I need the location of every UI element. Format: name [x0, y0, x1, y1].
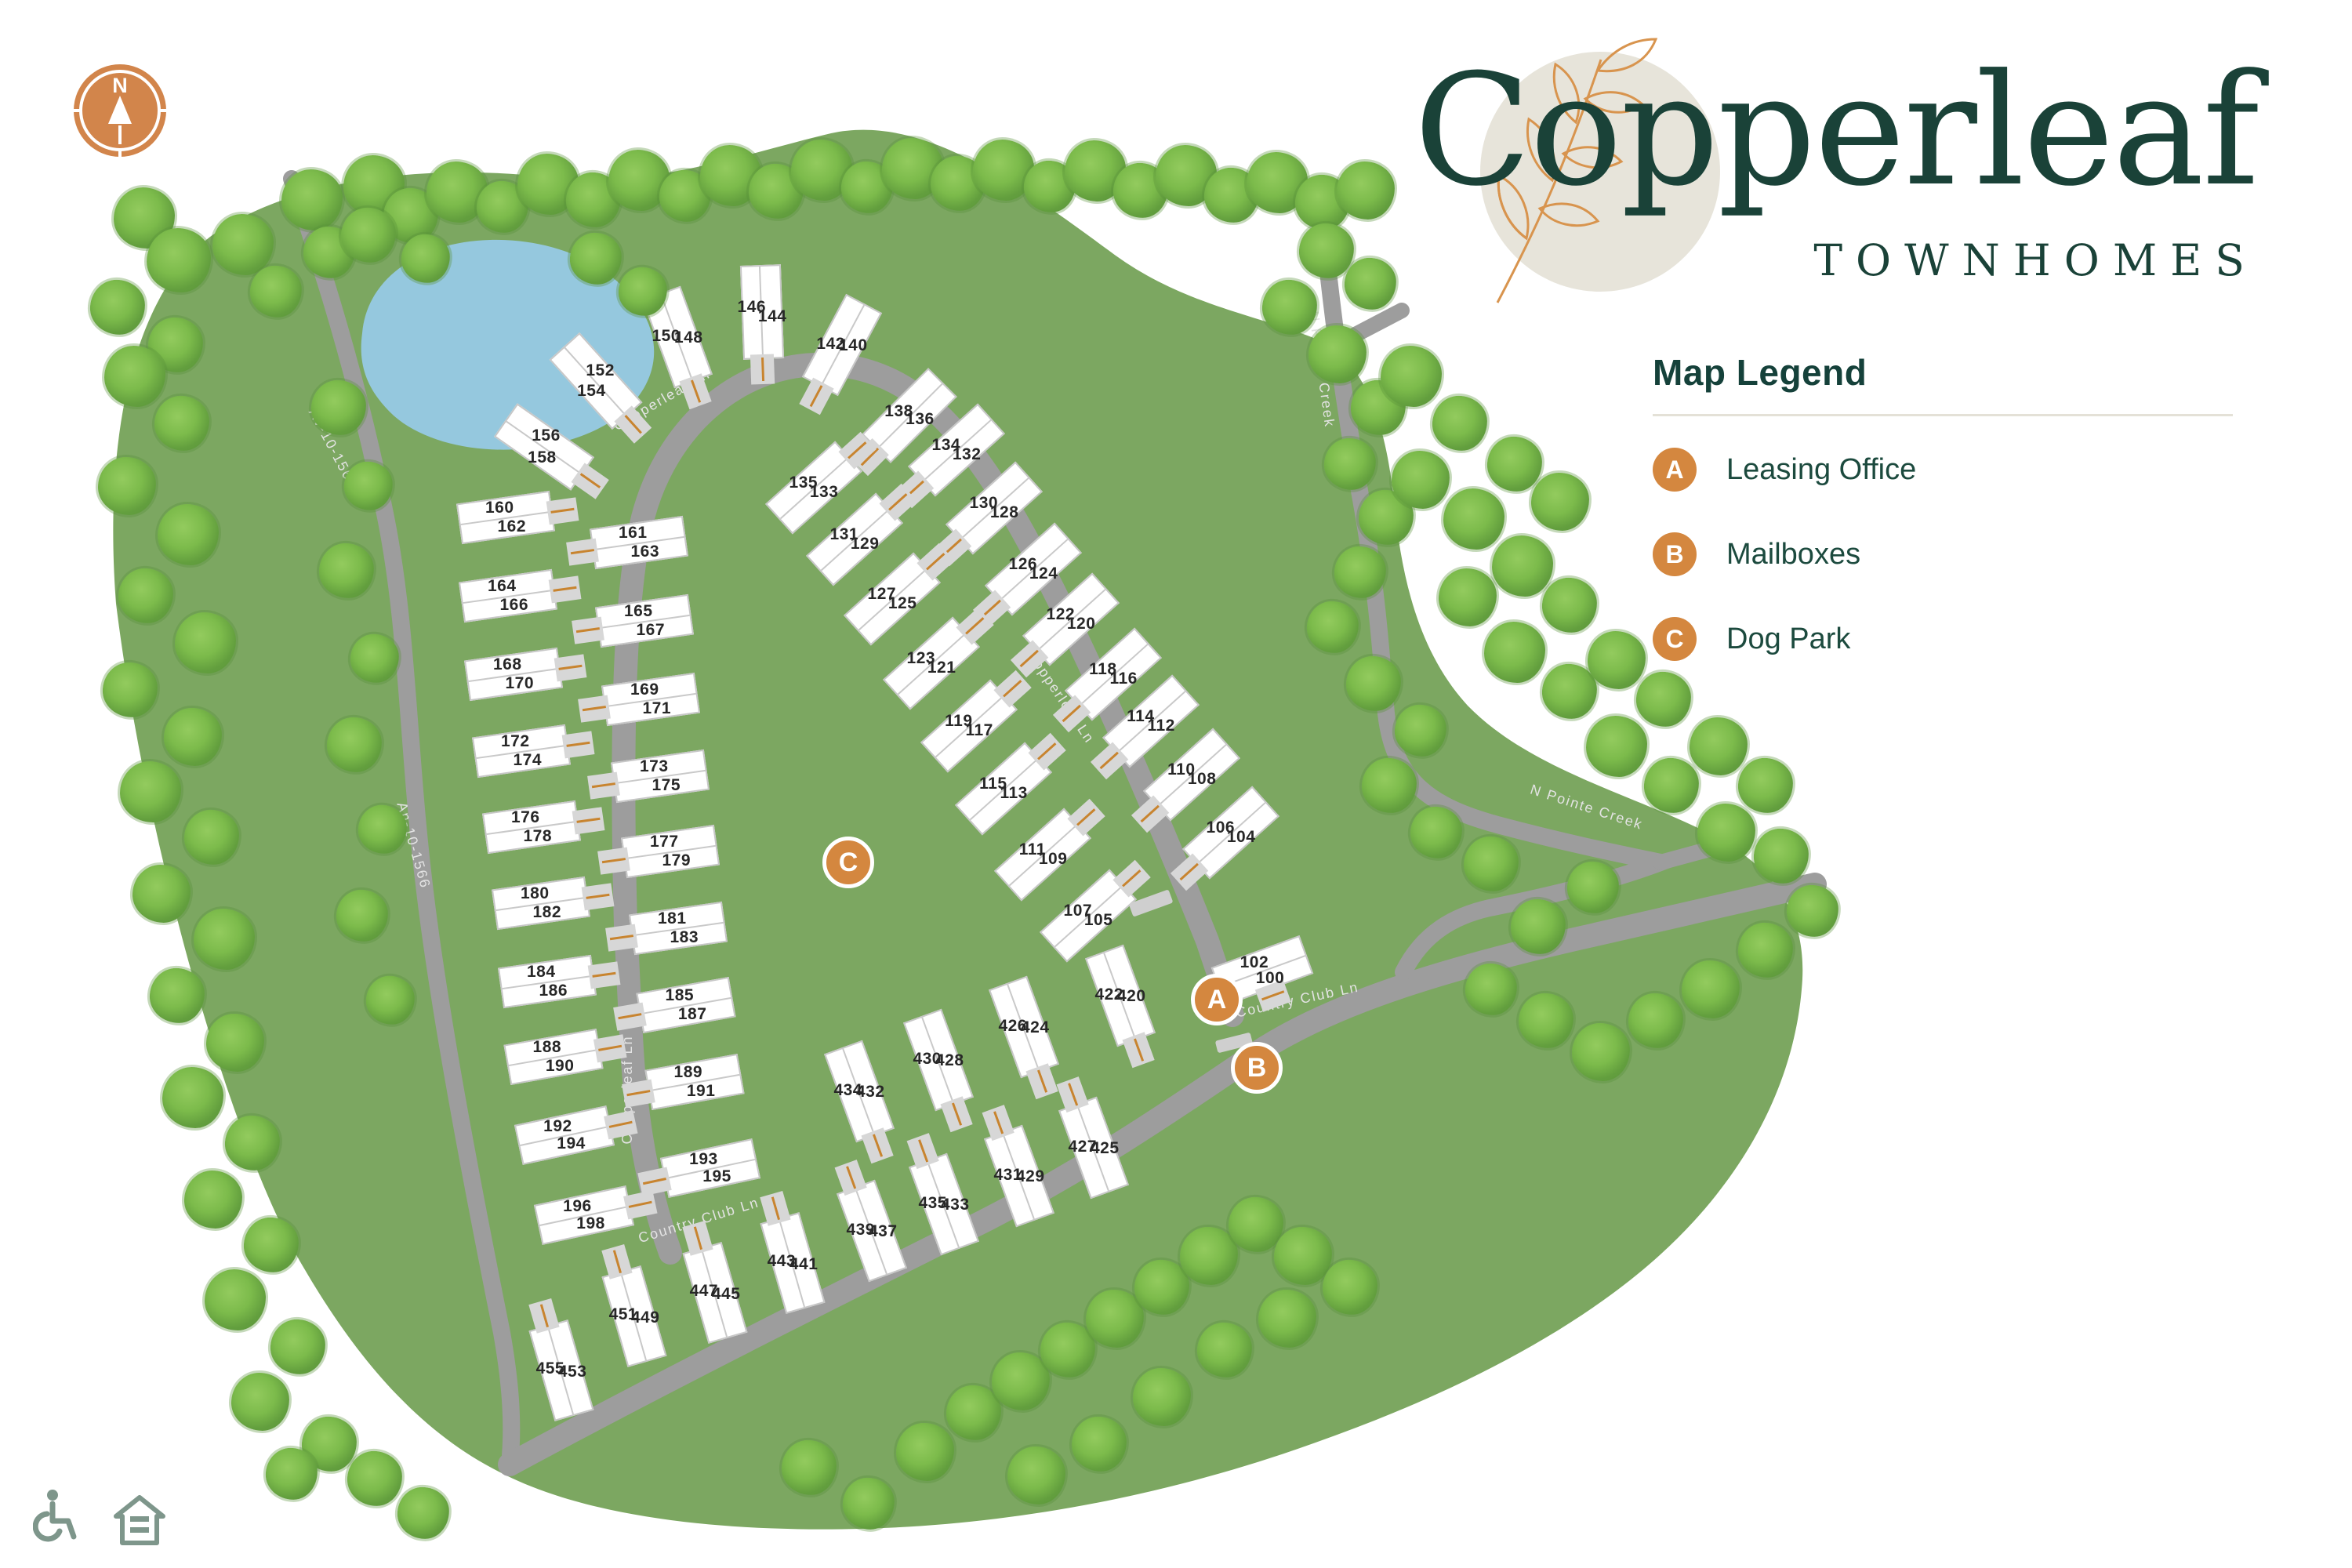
driveway-pad [549, 575, 582, 603]
tree-icon [1487, 437, 1542, 492]
tree-icon [1395, 705, 1446, 757]
tree-icon [1381, 346, 1442, 407]
unit-number-429: 429 [1016, 1167, 1045, 1186]
driveway-pad [554, 654, 587, 681]
unit-number-453: 453 [558, 1363, 587, 1381]
tree-icon [184, 1171, 242, 1229]
tree-icon [1432, 396, 1487, 451]
tree-icon [164, 708, 222, 766]
unit-number-109: 109 [1039, 850, 1068, 869]
footer-icons [33, 1488, 168, 1549]
unit-number-128: 128 [990, 503, 1019, 522]
tree-icon [103, 662, 158, 717]
driveway-divider-line [571, 549, 594, 554]
driveway-pad [582, 883, 615, 910]
unit-number-117: 117 [965, 721, 993, 740]
tree-icon [1258, 1290, 1316, 1348]
driveway-divider-line [1261, 990, 1284, 1000]
driveway-divider-line [1134, 1039, 1144, 1062]
tree-icon [281, 169, 343, 230]
unit-number-196: 196 [563, 1197, 592, 1216]
driveway-divider-line [580, 473, 601, 488]
driveway-pad [572, 617, 604, 644]
tree-icon [1410, 807, 1462, 858]
unit-number-132: 132 [953, 445, 982, 464]
tree-icon [270, 1319, 325, 1374]
tree-icon [1337, 162, 1395, 220]
tree-icon [347, 1451, 402, 1506]
driveway-divider-line [1020, 650, 1039, 667]
driveway-pad [578, 695, 611, 723]
unit-number-178: 178 [523, 827, 552, 846]
tree-icon [162, 1067, 223, 1128]
tree-icon [397, 1487, 449, 1539]
unit-number-198: 198 [576, 1214, 605, 1233]
unit-number-437: 437 [869, 1222, 898, 1241]
tree-icon [1542, 578, 1597, 633]
tree-icon [1334, 546, 1386, 598]
unit-number-156: 156 [532, 426, 561, 445]
unit-number-441: 441 [789, 1255, 818, 1274]
driveway-divider-line [771, 1196, 780, 1220]
tree-icon [150, 968, 205, 1023]
tree-icon [1586, 716, 1647, 777]
tree-icon [1274, 1227, 1332, 1285]
unit-number-192: 192 [543, 1117, 572, 1136]
unit-number-100: 100 [1256, 969, 1285, 988]
tree-icon [118, 568, 173, 623]
unit-number-113: 113 [1000, 784, 1027, 803]
legend-divider [1653, 414, 2233, 416]
legend-key-badge: B [1653, 532, 1697, 576]
tree-icon [1392, 451, 1450, 509]
unit-number-165: 165 [624, 602, 653, 621]
driveway-divider-line [1076, 808, 1095, 826]
driveway-divider-line [1141, 805, 1160, 822]
driveway-divider-line [1037, 742, 1056, 760]
unit-number-161: 161 [619, 524, 648, 543]
unit-number-167: 167 [636, 621, 665, 640]
unit-number-120: 120 [1067, 615, 1096, 633]
tree-icon [132, 865, 191, 923]
driveway-divider-line [583, 706, 606, 711]
unit-number-428: 428 [935, 1051, 964, 1070]
unit-number-189: 189 [674, 1063, 703, 1082]
tree-icon [1519, 993, 1573, 1048]
tree-icon [205, 1269, 266, 1330]
unit-number-166: 166 [499, 596, 528, 615]
unit-number-112: 112 [1147, 717, 1174, 735]
driveway-divider-line [566, 742, 590, 747]
driveway-divider-line [540, 1304, 549, 1327]
driveway-divider-line [918, 1139, 928, 1162]
unit-number-172: 172 [501, 732, 530, 751]
tree-icon [1588, 631, 1646, 689]
tree-icon [212, 214, 274, 275]
unit-number-177: 177 [650, 833, 679, 851]
driveway-pad [587, 772, 620, 800]
tree-icon [1567, 862, 1619, 913]
tree-icon [327, 717, 382, 772]
tree-icon [98, 457, 156, 515]
driveway-divider-line [576, 818, 600, 823]
tree-icon [1262, 280, 1317, 335]
tree-icon [1738, 923, 1793, 978]
driveway-divider-line [626, 1090, 650, 1096]
driveway-divider-line [694, 1226, 702, 1250]
unit-number-187: 187 [678, 1005, 707, 1024]
driveway-divider-line [952, 1103, 962, 1126]
tree-icon [1040, 1323, 1095, 1377]
tree-icon [147, 228, 211, 292]
driveway-divider-line [810, 385, 823, 407]
driveway-divider-line [993, 1111, 1004, 1134]
driveway-pad [622, 1080, 655, 1108]
tree-icon [570, 233, 622, 285]
driveway-divider-line [609, 1121, 633, 1128]
unit-number-105: 105 [1084, 911, 1113, 930]
tree-icon [244, 1218, 299, 1272]
tree-icon [1072, 1417, 1127, 1472]
unit-number-185: 185 [666, 986, 695, 1005]
compass-icon: N [74, 64, 166, 157]
driveway-pad [562, 731, 595, 758]
driveway-pad [572, 807, 605, 834]
unit-number-140: 140 [839, 336, 868, 355]
legend-key-badge: C [1653, 617, 1697, 661]
driveway-divider-line [610, 935, 633, 940]
tree-icon [1443, 488, 1504, 550]
map-marker-C[interactable]: C [822, 837, 874, 888]
tree-icon [843, 1478, 895, 1530]
tree-icon [194, 909, 255, 970]
tree-icon [1511, 899, 1566, 954]
unit-number-133: 133 [810, 483, 839, 502]
tree-icon [1465, 964, 1517, 1015]
driveway-divider-line [926, 553, 945, 570]
unit-number-181: 181 [658, 909, 687, 928]
tree-icon [896, 1423, 954, 1481]
tree-icon [1484, 622, 1545, 683]
unit-number-171: 171 [642, 699, 671, 718]
legend-item-dog-park[interactable]: CDog Park [1653, 617, 2233, 661]
tree-icon [1134, 1260, 1189, 1315]
legend-item-label: Dog Park [1726, 622, 1850, 656]
unit-number-144: 144 [758, 307, 787, 326]
wheelchair-accessible-icon [33, 1488, 85, 1549]
tree-icon [1644, 758, 1699, 813]
tree-icon [1086, 1290, 1144, 1348]
tree-icon [1754, 829, 1809, 884]
tree-icon [336, 890, 388, 942]
tree-icon [311, 380, 366, 435]
tree-icon [1439, 568, 1497, 626]
legend-key-badge: A [1653, 448, 1697, 492]
tree-icon [1229, 1197, 1283, 1252]
unit-number-173: 173 [640, 757, 669, 776]
unit-number-124: 124 [1029, 564, 1058, 583]
legend-item-leasing-office[interactable]: ALeasing Office [1653, 448, 2233, 492]
unit-number-174: 174 [513, 751, 542, 770]
legend-heading: Map Legend [1653, 351, 2233, 394]
unit-number-188: 188 [533, 1038, 562, 1057]
legend-rows: ALeasing OfficeBMailboxesCDog Park [1653, 448, 2233, 661]
tree-icon [1628, 993, 1683, 1048]
unit-number-163: 163 [630, 543, 659, 561]
tree-icon [250, 266, 302, 318]
driveway-divider-line [1100, 752, 1119, 769]
unit-number-116: 116 [1109, 670, 1137, 688]
driveway-divider-line [1037, 1070, 1047, 1093]
tree-icon [1324, 438, 1376, 490]
tree-icon [1542, 664, 1597, 719]
tree-icon [120, 761, 181, 822]
tree-icon [1007, 1446, 1065, 1504]
unit-number-449: 449 [631, 1308, 660, 1327]
tree-icon [1362, 758, 1417, 813]
unit-number-179: 179 [662, 851, 691, 870]
driveway-divider-line [761, 358, 764, 381]
unit-number-125: 125 [888, 594, 917, 613]
driveway-divider-line [965, 617, 984, 634]
driveway-divider-line [873, 1134, 883, 1157]
unit-number-186: 186 [539, 982, 568, 1000]
driveway-divider-line [846, 1166, 856, 1189]
driveway-divider-line [1180, 863, 1199, 880]
tree-icon [1346, 656, 1401, 711]
driveway-divider-line [848, 441, 866, 459]
unit-number-104: 104 [1227, 828, 1256, 847]
compass-tick-west [64, 109, 82, 112]
tree-icon [1682, 960, 1740, 1018]
equal-housing-icon [111, 1493, 168, 1549]
unit-number-445: 445 [712, 1285, 741, 1304]
driveway-divider-line [553, 586, 576, 592]
unit-number-136: 136 [906, 410, 935, 429]
tree-icon [104, 346, 165, 407]
brand-subtitle: TOWNHOMES [1396, 235, 2258, 285]
tree-icon [1197, 1323, 1252, 1377]
map-marker-B[interactable]: B [1231, 1042, 1283, 1094]
driveway-pad [605, 924, 638, 952]
legend-item-label: Mailboxes [1726, 538, 1860, 572]
tree-icon [1697, 804, 1755, 862]
tree-icon [1690, 717, 1748, 775]
unit-number-190: 190 [546, 1057, 575, 1076]
tree-icon [231, 1373, 289, 1431]
unit-number-108: 108 [1188, 770, 1217, 789]
unit-number-175: 175 [652, 776, 681, 795]
tree-icon [1133, 1368, 1191, 1426]
unit-number-160: 160 [485, 499, 514, 517]
unit-number-184: 184 [527, 963, 556, 982]
unit-number-425: 425 [1091, 1139, 1120, 1158]
driveway-divider-line [550, 508, 574, 514]
unit-number-154: 154 [577, 382, 606, 401]
compass-arrow [108, 96, 132, 124]
tree-icon [90, 280, 145, 335]
driveway-pad [546, 497, 579, 524]
compass-stem [118, 125, 122, 144]
unit-number-121: 121 [927, 659, 956, 677]
unit-number-420: 420 [1117, 987, 1146, 1006]
unit-number-424: 424 [1021, 1018, 1050, 1037]
tree-icon [1180, 1227, 1238, 1285]
tree-icon [782, 1440, 837, 1495]
driveway-pad [566, 539, 599, 566]
tree-icon [992, 1352, 1050, 1410]
driveway-pad [588, 961, 621, 989]
legend-item-mailboxes[interactable]: BMailboxes [1653, 532, 2233, 576]
unit-number-168: 168 [493, 655, 522, 674]
unit-number-433: 433 [941, 1196, 970, 1214]
driveway-divider-line [576, 627, 600, 633]
driveway-divider-line [1003, 680, 1022, 697]
tree-icon [341, 208, 396, 263]
tree-icon [1299, 223, 1354, 278]
driveway-divider-line [602, 858, 626, 863]
unit-number-158: 158 [528, 448, 557, 467]
map-legend: Map Legend ALeasing OfficeBMailboxesCDog… [1653, 351, 2233, 702]
unit-number-129: 129 [851, 535, 880, 554]
unit-number-170: 170 [505, 674, 534, 693]
driveway-divider-line [598, 1045, 622, 1051]
driveway-divider-line [691, 380, 701, 403]
tree-icon [184, 810, 239, 865]
compass-tick-east [158, 109, 176, 112]
tree-icon [1323, 1260, 1377, 1315]
driveway-divider-line [1122, 869, 1141, 887]
tree-icon [946, 1385, 1001, 1440]
tree-icon [319, 543, 374, 598]
driveway-divider-line [625, 415, 642, 434]
driveway-divider-line [558, 665, 582, 670]
tree-icon [158, 504, 219, 565]
tree-icon [266, 1448, 318, 1500]
tree-icon [225, 1116, 280, 1171]
legend-item-label: Leasing Office [1726, 453, 1916, 487]
unit-number-164: 164 [488, 577, 517, 596]
tree-icon [175, 612, 236, 673]
unit-number-193: 193 [689, 1150, 718, 1169]
unit-number-194: 194 [557, 1134, 586, 1153]
tree-icon [1308, 325, 1367, 383]
tree-icon [1345, 258, 1396, 310]
tree-icon [1464, 837, 1519, 891]
unit-number-176: 176 [511, 808, 540, 827]
driveway-divider-line [629, 1201, 652, 1208]
unit-number-182: 182 [532, 903, 561, 922]
driveway-divider-line [592, 782, 615, 788]
driveway-pad [637, 1167, 671, 1196]
brand-title: Copperleaf [1396, 47, 2258, 216]
compass-tick-south [118, 149, 122, 166]
tree-icon [154, 396, 209, 451]
tree-icon [1787, 885, 1838, 937]
unit-number-191: 191 [687, 1082, 716, 1101]
driveway-divider-line [643, 1178, 666, 1185]
tree-icon [1492, 535, 1553, 597]
driveway-pad [750, 354, 775, 385]
driveway-pad [613, 1003, 647, 1031]
driveway-divider-line [618, 1013, 641, 1019]
site-map-page: Copperleaf LnCopperleaf LnCopperleaf LnC… [0, 0, 2352, 1568]
unit-number-152: 152 [586, 361, 615, 380]
driveway-divider-line [888, 493, 907, 510]
driveway-pad [597, 848, 630, 875]
unit-number-432: 432 [856, 1083, 885, 1102]
tree-icon [1738, 758, 1793, 813]
tree-icon [1572, 1023, 1630, 1081]
tree-icon [206, 1014, 264, 1072]
tree-icon [1307, 601, 1359, 653]
driveway-divider-line [613, 1250, 622, 1273]
unit-number-148: 148 [674, 328, 703, 347]
driveway-divider-line [592, 972, 615, 978]
unit-number-169: 169 [630, 681, 659, 699]
driveway-divider-line [1062, 705, 1081, 722]
driveway-divider-line [586, 894, 609, 899]
unit-number-183: 183 [670, 928, 699, 947]
driveway-divider-line [1068, 1083, 1078, 1105]
unit-number-162: 162 [497, 517, 526, 536]
map-marker-A[interactable]: A [1191, 974, 1243, 1025]
unit-number-195: 195 [702, 1167, 731, 1186]
unit-number-180: 180 [521, 884, 550, 903]
compass-north-letter: N [74, 74, 166, 98]
tree-icon [1531, 473, 1589, 531]
